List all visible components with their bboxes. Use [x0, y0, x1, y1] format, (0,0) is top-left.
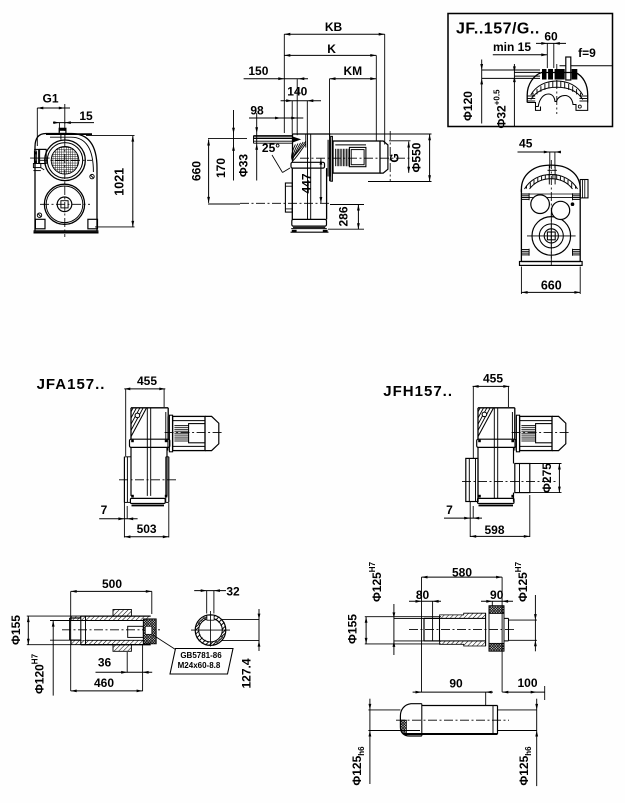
- svg-text:455: 455: [137, 374, 157, 388]
- svg-text:660: 660: [190, 161, 204, 181]
- svg-text:60: 60: [544, 30, 558, 44]
- svg-text:K: K: [327, 42, 336, 56]
- svg-text:Φ155: Φ155: [9, 615, 23, 645]
- svg-text:Φ550: Φ550: [409, 142, 423, 172]
- svg-text:170: 170: [214, 158, 228, 178]
- svg-text:KB: KB: [325, 20, 343, 34]
- svg-text:JF..157/G..: JF..157/G..: [456, 21, 540, 38]
- svg-text:min 15: min 15: [493, 40, 531, 54]
- svg-text:503: 503: [137, 522, 157, 536]
- svg-text:598: 598: [484, 523, 504, 537]
- svg-text:90: 90: [490, 588, 504, 602]
- svg-text:500: 500: [102, 577, 122, 591]
- svg-text:36: 36: [98, 656, 112, 670]
- svg-text:f=9: f=9: [578, 46, 596, 60]
- svg-text:460: 460: [94, 676, 114, 690]
- svg-text:80: 80: [416, 588, 430, 602]
- svg-text:M24x60-8.8: M24x60-8.8: [178, 661, 221, 670]
- svg-text:150: 150: [248, 64, 268, 78]
- svg-text:100: 100: [517, 676, 537, 690]
- svg-text:660: 660: [541, 279, 562, 293]
- svg-text:JFA157..: JFA157..: [37, 376, 106, 393]
- svg-text:GB5781-86: GB5781-86: [180, 651, 222, 660]
- svg-text:25°: 25°: [262, 141, 280, 155]
- svg-text:7: 7: [101, 503, 108, 517]
- svg-text:Φ275: Φ275: [540, 463, 554, 493]
- svg-text:KM: KM: [343, 64, 362, 78]
- svg-text:455: 455: [483, 371, 503, 385]
- svg-text:32: 32: [226, 585, 240, 599]
- svg-text:G: G: [387, 153, 401, 162]
- svg-text:15: 15: [79, 109, 93, 123]
- svg-text:Φ155: Φ155: [346, 614, 360, 644]
- svg-text:127.4: 127.4: [239, 658, 253, 688]
- svg-text:1021: 1021: [113, 168, 127, 196]
- svg-text:JFH157..: JFH157..: [383, 383, 453, 400]
- svg-text:Φ120: Φ120: [461, 91, 475, 121]
- svg-text:45: 45: [519, 137, 533, 151]
- svg-text:90: 90: [449, 677, 463, 691]
- svg-text:7: 7: [446, 503, 453, 517]
- svg-text:Φ33: Φ33: [237, 154, 251, 178]
- svg-text:G1: G1: [42, 92, 58, 106]
- svg-text:447: 447: [300, 173, 314, 193]
- svg-text:286: 286: [337, 206, 351, 226]
